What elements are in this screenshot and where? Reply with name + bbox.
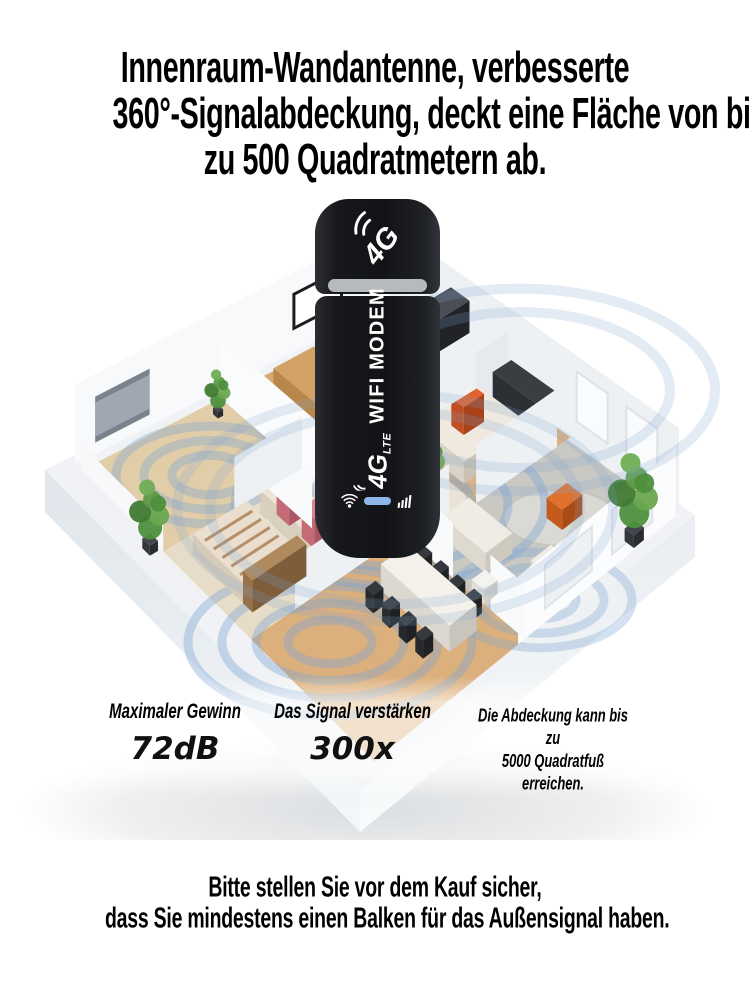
footer-line-1: Bitte stellen Sie vor dem Kauf sicher, [105, 871, 645, 904]
stat-coverage: Die Abdeckung kann bis zu 5000 Quadratfu… [448, 704, 658, 792]
headline-line-2: 360°-Signalabdeckung, deckt eine Fläche … [113, 89, 638, 138]
modem-body-label: 4GLTE WIFI MODEM [362, 287, 393, 489]
4g-lte-logo: 4GLTE [362, 433, 393, 489]
led-bar [364, 497, 391, 505]
wifi-icon [341, 494, 358, 508]
modem-indicator-row [315, 494, 440, 508]
stat-label: Das Signal verstärken [272, 700, 433, 723]
footer-note: Bitte stellen Sie vor dem Kauf sicher, d… [0, 872, 750, 934]
stat-label: Maximaler Gewinn [89, 700, 262, 723]
footer-line-2: dass Sie mindestens einen Balken für das… [105, 902, 645, 935]
modem-cap: 4G [315, 199, 440, 294]
stat-value: 300x [245, 731, 460, 767]
stat-signal-boost: Das Signal verstärken 300x [245, 700, 460, 767]
stat-label: Die Abdeckung kann bis zu 5000 Quadratfu… [475, 704, 630, 795]
usb-modem-product: 4G 4GLTE WIFI MODEM [315, 199, 440, 558]
signal-waves-icon [353, 475, 365, 491]
headline-line-1: Innenraum-Wandantenne, verbesserte [113, 43, 638, 92]
signal-bars-icon [397, 494, 415, 508]
4g-logo-icon: 4G [339, 201, 417, 279]
headline: Innenraum-Wandantenne, verbesserte 360°-… [0, 44, 750, 182]
modem-body: 4GLTE WIFI MODEM [315, 296, 440, 558]
marketing-page: Innenraum-Wandantenne, verbesserte 360°-… [0, 0, 750, 1000]
headline-line-3: zu 500 Quadratmetern ab. [113, 135, 638, 184]
